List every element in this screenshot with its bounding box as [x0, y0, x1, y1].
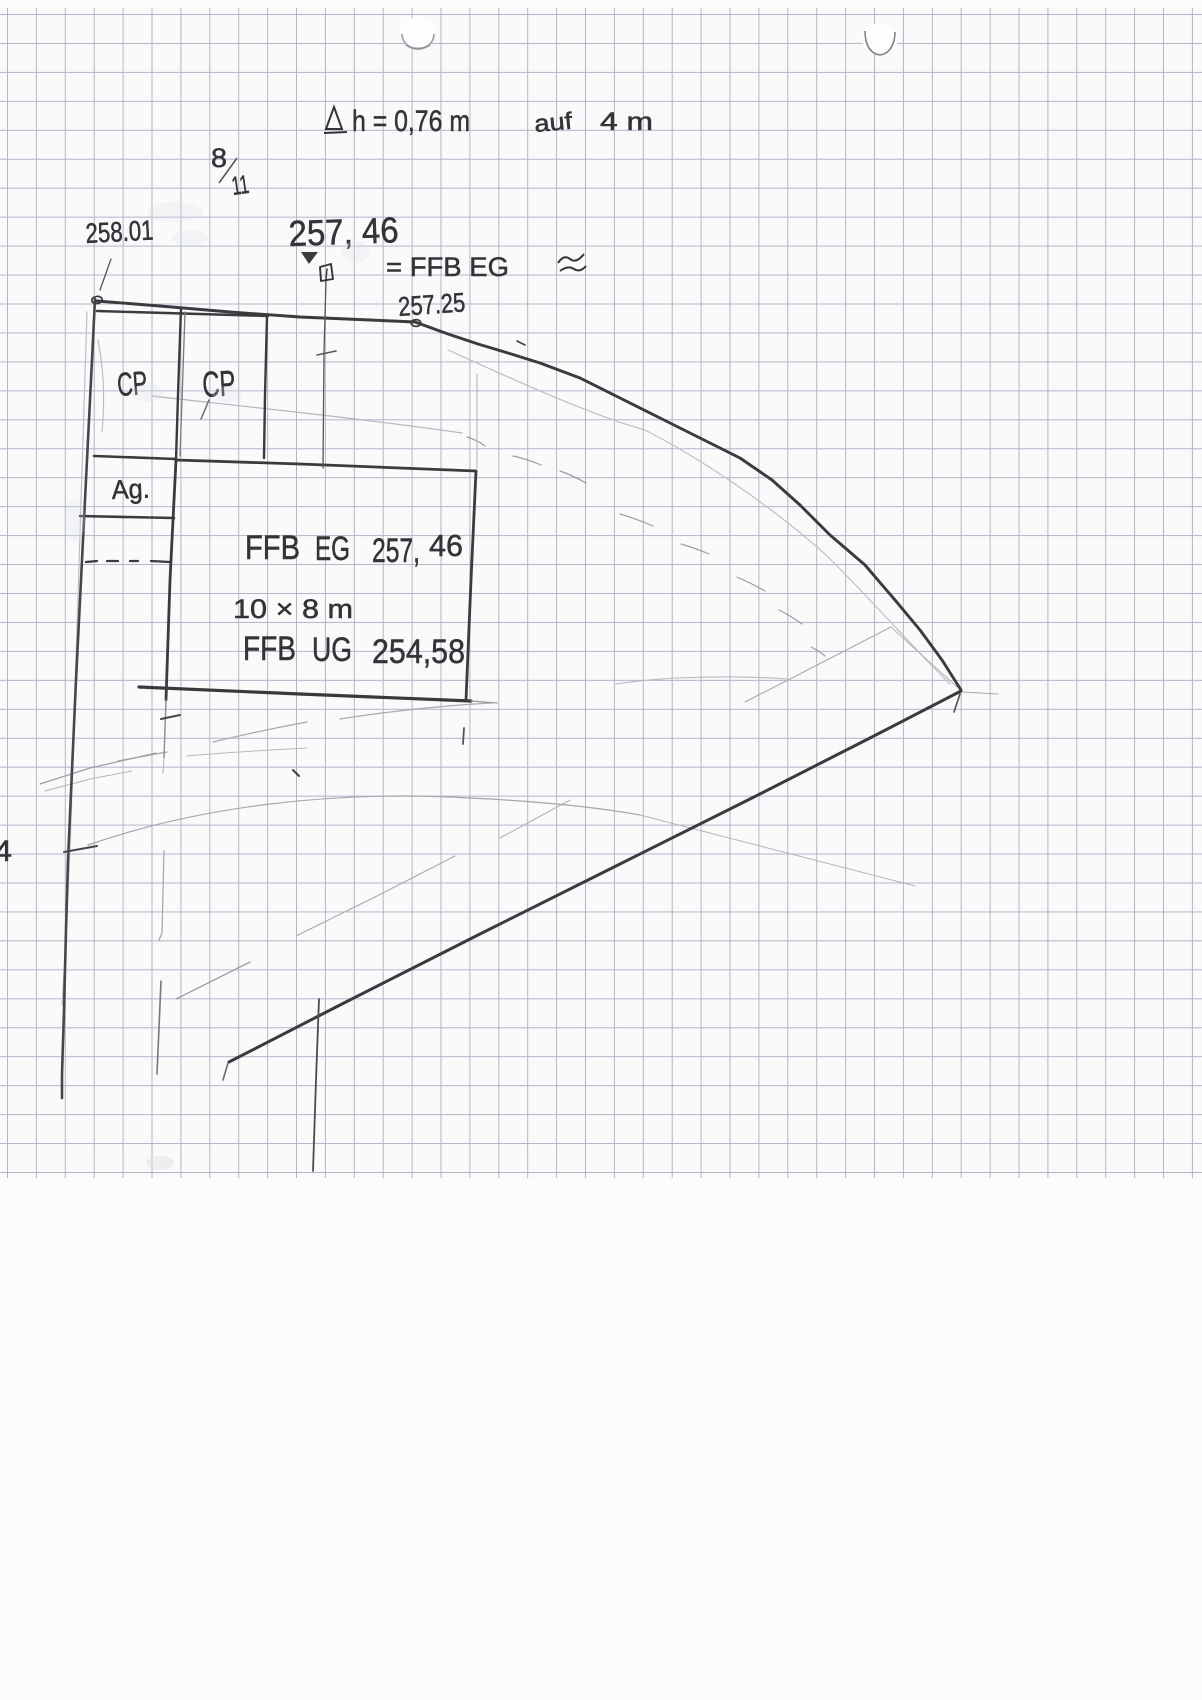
svg-text:EG: EG [315, 530, 350, 568]
svg-text:= FFB EG: = FFB EG [386, 252, 509, 282]
svg-text:UG: UG [312, 631, 352, 669]
svg-text:258.01: 258.01 [85, 214, 155, 249]
svg-text:h = 0,76 m: h = 0,76 m [352, 105, 470, 138]
svg-text:FFB: FFB [245, 529, 300, 567]
svg-text:254,58: 254,58 [372, 633, 465, 671]
svg-text:4 m: 4 m [600, 108, 653, 136]
svg-text:46: 46 [429, 528, 463, 563]
svg-text:257,: 257, [372, 532, 420, 570]
svg-text:auf: auf [533, 108, 574, 138]
svg-text:Ag.: Ag. [111, 474, 150, 505]
svg-text:257.25: 257.25 [397, 287, 466, 322]
svg-text:8: 8 [211, 143, 227, 173]
svg-text:FFB: FFB [243, 630, 296, 668]
svg-text:4: 4 [0, 835, 12, 868]
svg-text:10 × 8 m: 10 × 8 m [233, 594, 353, 624]
